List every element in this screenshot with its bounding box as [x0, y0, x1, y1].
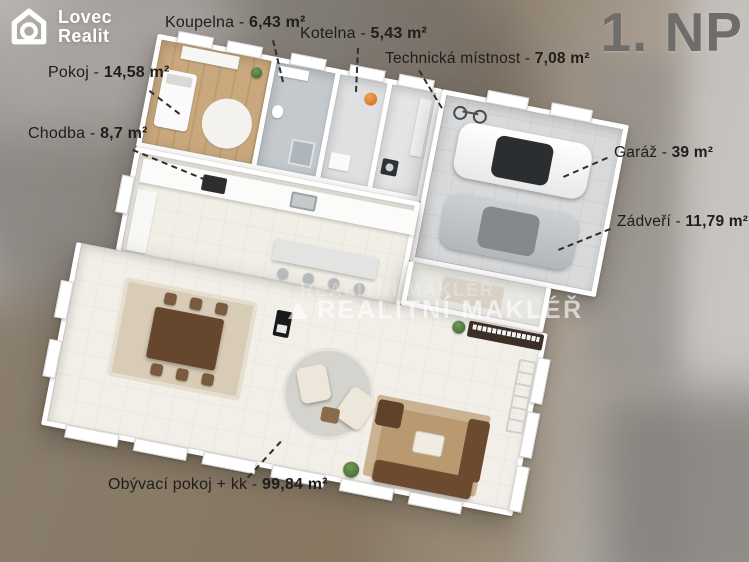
separator: -	[234, 14, 249, 31]
kitchen-sink	[289, 191, 318, 212]
room-name: Pokoj	[48, 64, 89, 81]
boiler-cabinet	[328, 152, 351, 172]
logo-text: Lovec Realit	[58, 8, 112, 47]
bicycle	[453, 103, 489, 122]
logo-line2: Realit	[58, 27, 112, 46]
logo-line1: Lovec	[58, 8, 112, 27]
floor-plan	[41, 26, 629, 524]
dining-chair	[189, 297, 203, 311]
room-area: 6,43 m²	[249, 14, 306, 31]
room-area: 39 m²	[672, 144, 714, 161]
label-obyvaci-pokoj: Obývací pokoj + kk - 99,84 m²	[108, 476, 328, 494]
label-garaz: Garáž - 39 m²	[614, 144, 713, 162]
bathroom-shower	[287, 138, 316, 168]
label-koupelna: Koupelna - 6,43 m²	[165, 14, 306, 32]
plant	[250, 66, 263, 79]
bar-stool	[302, 272, 315, 285]
room-area: 7,08 m²	[535, 50, 590, 67]
dining-chair	[214, 302, 228, 316]
room-name: Technická místnost	[385, 50, 520, 67]
floorplan-render: REALITNÍ MAKLÉŘ REALITNÍ MAKLÉŘ Koupelna…	[0, 0, 749, 562]
car-roof	[476, 205, 541, 257]
label-zadveri: Zádveří - 11,79 m²	[617, 213, 748, 231]
side-table	[320, 406, 341, 424]
room-garage	[409, 89, 629, 297]
background-blur-bottomright	[600, 390, 749, 562]
separator: -	[657, 144, 671, 161]
entry-rug	[439, 276, 504, 311]
room-name: Koupelna	[165, 14, 234, 31]
bathroom-toilet	[271, 104, 284, 119]
room-name: Garáž	[614, 144, 657, 161]
room-area: 5,43 m²	[371, 25, 428, 42]
washing-machine	[380, 158, 399, 177]
separator: -	[671, 213, 685, 230]
dining-chair	[175, 368, 189, 382]
label-kotelna: Kotelna - 5,43 m²	[300, 25, 427, 43]
bar-stool	[327, 277, 340, 290]
room-name: Chodba	[28, 125, 85, 142]
technical-shelf	[409, 98, 432, 157]
room-name: Zádveří	[617, 213, 671, 230]
room-name: Kotelna	[300, 25, 356, 42]
plant	[342, 460, 361, 479]
boiler-tank	[363, 91, 378, 106]
bar-stool	[276, 267, 289, 280]
separator: -	[520, 50, 534, 67]
room-area: 8,7 m²	[100, 125, 147, 142]
dining-chair	[150, 363, 164, 377]
lovec-realit-logo: Lovec Realit	[8, 6, 112, 48]
room-area: 99,84 m²	[262, 476, 328, 493]
label-technicka-mistnost: Technická místnost - 7,08 m²	[385, 50, 590, 68]
room-name: Obývací pokoj + kk	[108, 476, 247, 493]
garage-floor	[415, 95, 623, 291]
car-roof	[490, 134, 555, 186]
bar-stool	[353, 282, 366, 295]
plant	[451, 319, 466, 334]
kitchen-tall-cabinet	[126, 189, 157, 254]
bedroom-rug	[198, 94, 257, 153]
dining-chair	[201, 373, 215, 387]
separator: -	[247, 476, 262, 493]
car-gray	[437, 191, 580, 272]
label-pokoj: Pokoj - 14,58 m²	[48, 64, 170, 82]
label-chodba: Chodba - 8,7 m²	[28, 125, 148, 143]
armchair	[374, 399, 404, 429]
wood-stove	[272, 310, 293, 339]
separator: -	[89, 64, 104, 81]
house-logo-icon	[8, 6, 50, 48]
separator: -	[356, 25, 371, 42]
dining-chair	[163, 292, 177, 306]
floor-number-badge: 1. NP	[600, 0, 743, 64]
background-blur-right	[688, 0, 749, 562]
room-area: 14,58 m²	[104, 64, 170, 81]
separator: -	[85, 125, 100, 142]
room-area: 11,79 m²	[685, 213, 748, 230]
car-white	[451, 120, 594, 201]
